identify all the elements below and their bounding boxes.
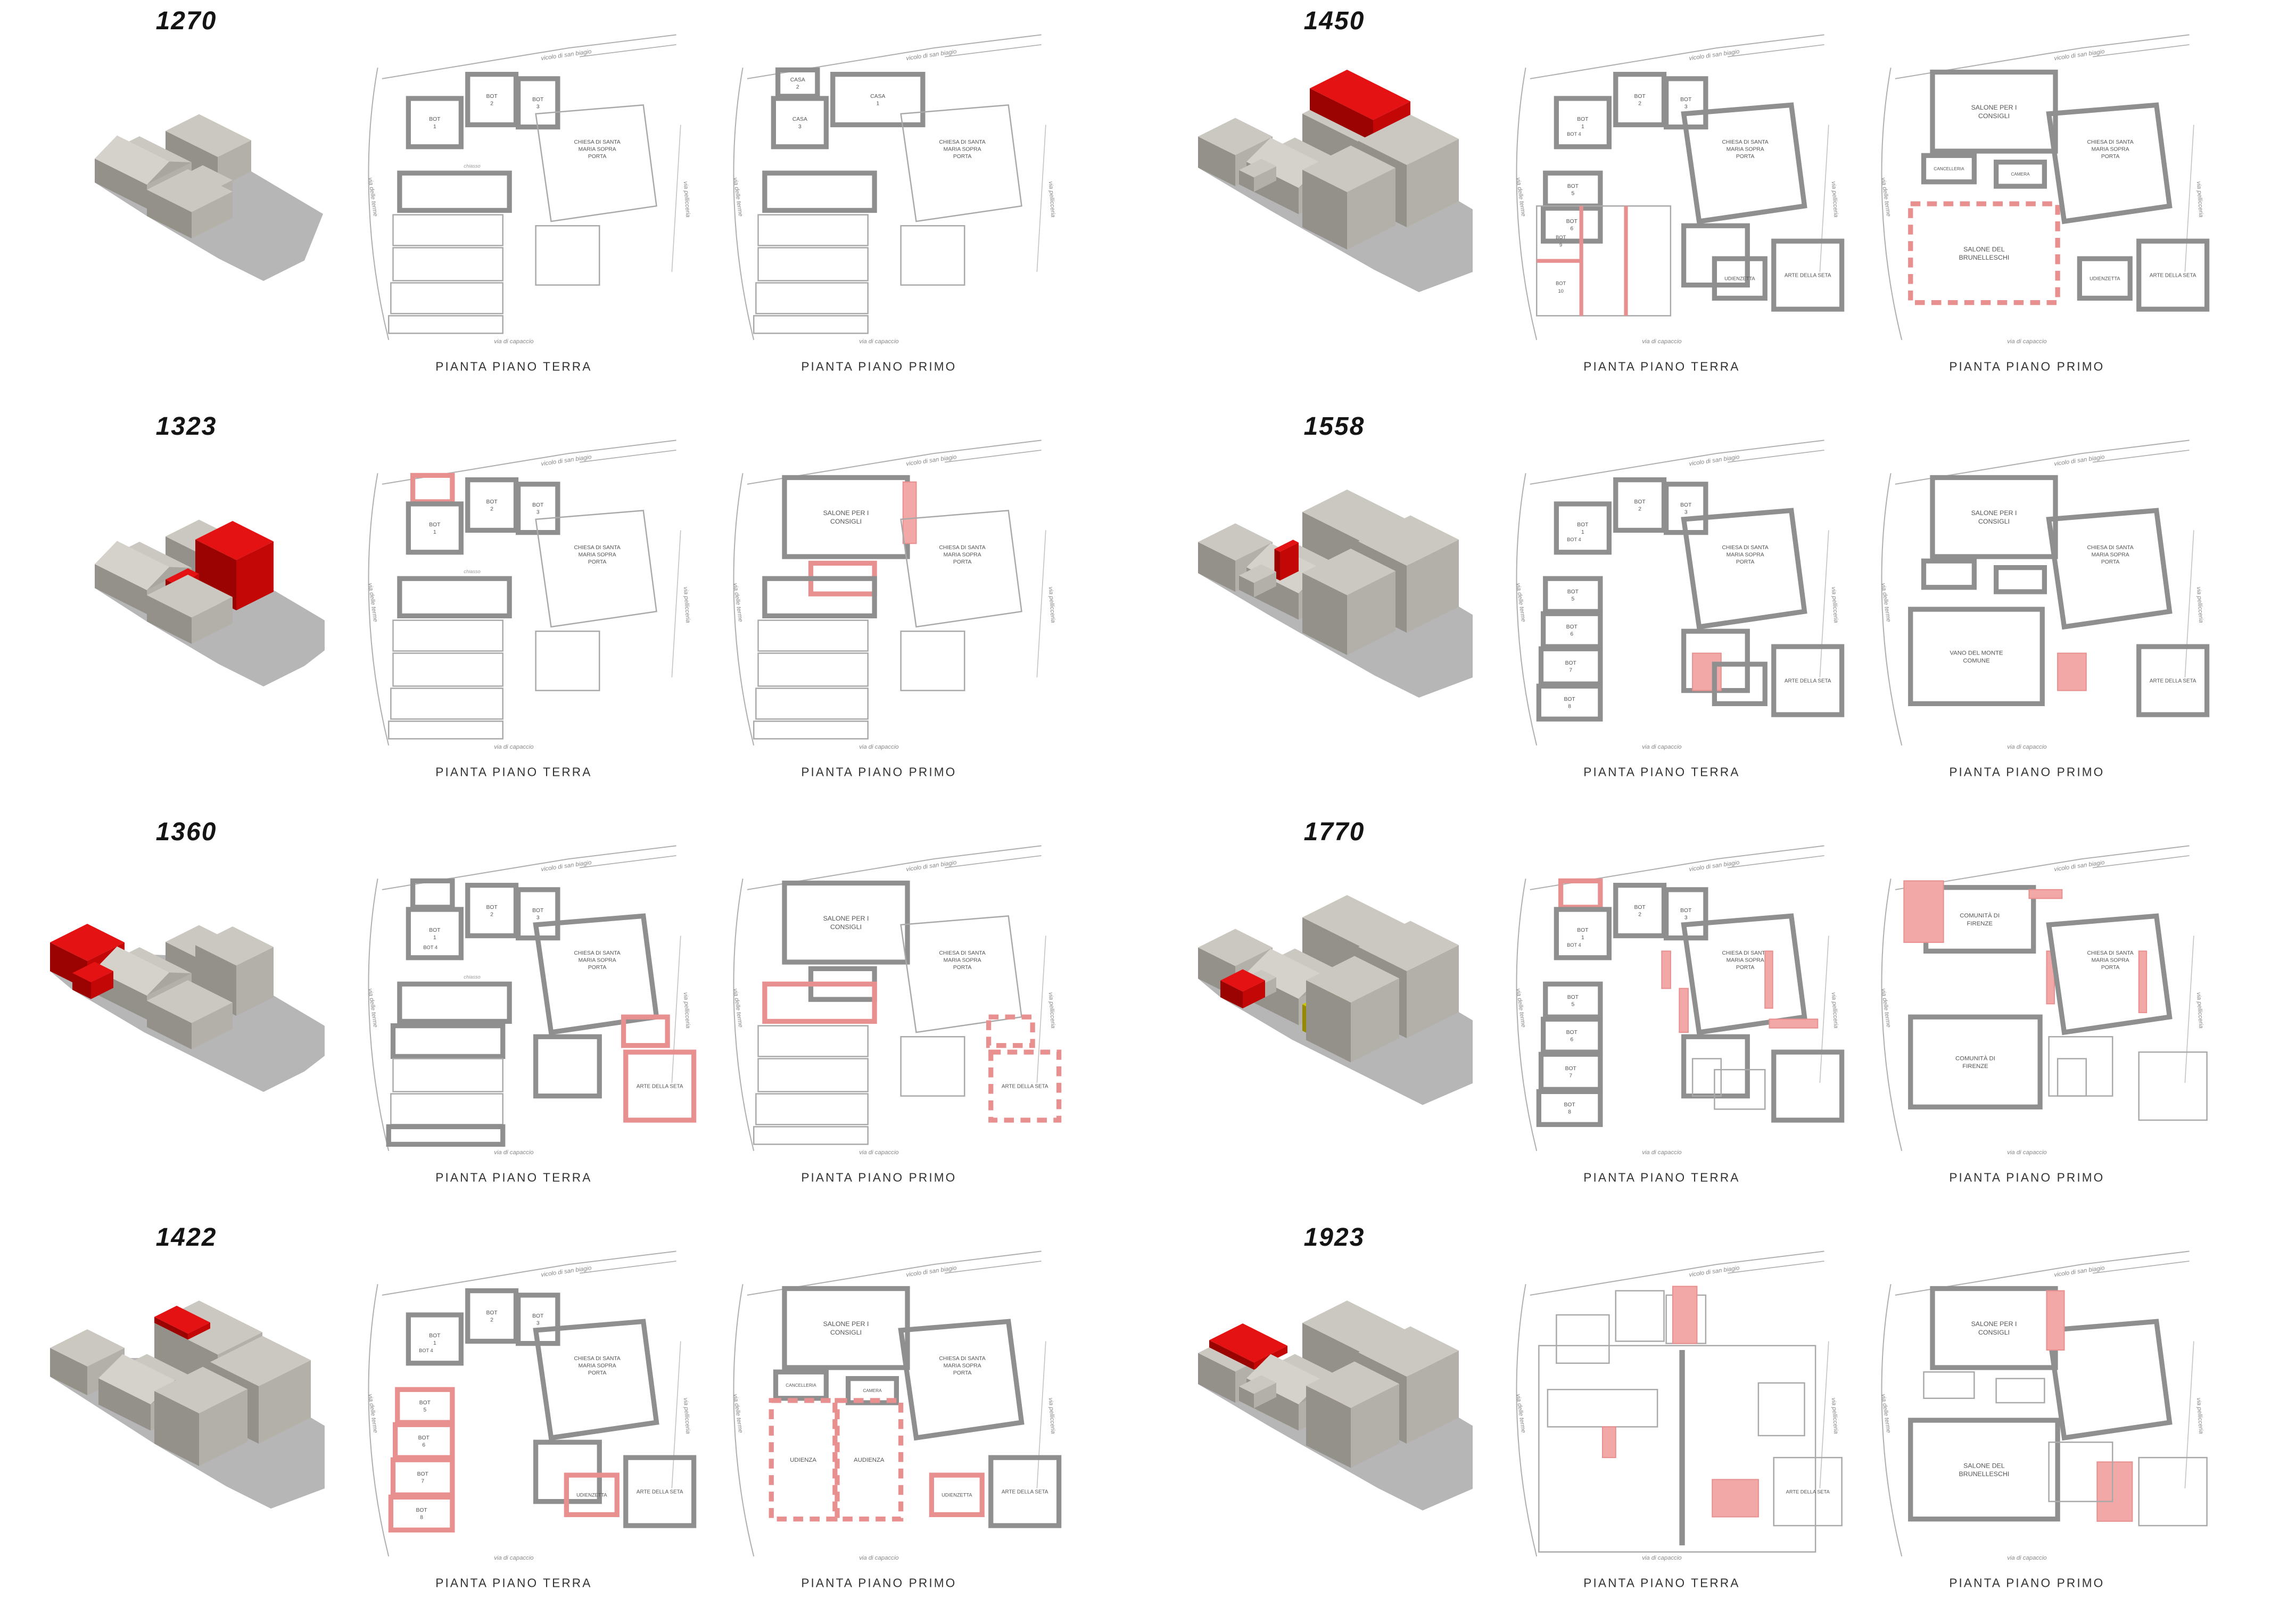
room-p4 <box>389 1127 503 1144</box>
room-label: SALONE PER I <box>1971 104 2017 111</box>
room-label: SALONE PER I <box>1971 509 2017 517</box>
room-label: BOT <box>532 502 544 508</box>
room-label: MARIA SOPRA <box>2092 146 2129 152</box>
room-label: 5 <box>1571 1002 1574 1008</box>
plan-caption: PIANTA PIANO TERRA <box>1583 1171 1740 1185</box>
room-label: BOT 4 <box>1567 942 1581 948</box>
room-label: BOT <box>1634 94 1646 100</box>
room-church <box>1684 510 1805 627</box>
room-salone <box>1932 72 2055 152</box>
room-label: BOT <box>419 1400 431 1406</box>
street-label-right: via pellicceria <box>1830 181 1839 218</box>
plan-caption: PIANTA PIANO PRIMO <box>1949 1171 2104 1185</box>
floor-plan: vicolo di san biagiovia delle termevia p… <box>1497 822 1848 1190</box>
room-label: SALONE DEL <box>1963 245 2005 253</box>
room-label: MARIA SOPRA <box>2092 552 2129 558</box>
room-tlC <box>1616 74 1664 125</box>
room-long <box>400 984 509 1021</box>
room-L5 <box>1539 1091 1600 1124</box>
street-label-bottom: via di capaccio <box>859 1555 898 1561</box>
floor-plan: vicolo di san biagiovia delle termevia p… <box>714 1227 1066 1596</box>
room-label: BOT 4 <box>419 1348 433 1353</box>
room-stair <box>2058 653 2086 691</box>
plan-caption: PIANTA PIANO TERRA <box>1583 1576 1740 1590</box>
room-label: CHIESA DI SANTA <box>939 139 985 145</box>
street-label-right: via pellicceria <box>2195 992 2204 1029</box>
street-label-top: vicolo di san biagio <box>541 454 592 467</box>
room-label: ARTE DELLA SETA <box>1785 678 1831 684</box>
room-label: 6 <box>1570 1037 1573 1043</box>
massing-column: 1360 <box>16 814 335 1187</box>
room-p2 <box>758 248 868 281</box>
street-label-right: via pellicceria <box>1047 992 1056 1029</box>
street-label-top: vicolo di san biagio <box>2054 48 2105 62</box>
room-label: BOT <box>486 905 498 910</box>
street-label-bottom: via di capaccio <box>2007 744 2046 750</box>
room-label: 6 <box>422 1443 425 1448</box>
room-label: 5 <box>423 1407 426 1413</box>
alley-label: chiasso <box>464 974 480 980</box>
massing-column: 1422 <box>16 1220 335 1593</box>
room-label: 2 <box>490 1317 493 1323</box>
street-label-right: via pellicceria <box>1830 992 1839 1029</box>
street-label-top: vicolo di san biagio <box>906 48 957 62</box>
room-label: PORTA <box>588 559 607 565</box>
street-label-bottom: via di capaccio <box>2007 1149 2046 1156</box>
room-udtta <box>1714 1070 1765 1109</box>
room-label: BOT <box>1577 117 1589 122</box>
room-label: MARIA SOPRA <box>1727 552 1764 558</box>
plan-caption: PIANTA PIANO PRIMO <box>801 1576 956 1590</box>
street-label-right: via pellicceria <box>682 1397 691 1434</box>
alley-label: chiasso <box>464 569 480 574</box>
room-label: CHIESA DI SANTA <box>1722 545 1768 551</box>
room-center <box>901 226 965 285</box>
street-label-top: vicolo di san biagio <box>1689 48 1740 62</box>
plan-caption: PIANTA PIANO PRIMO <box>801 1171 956 1185</box>
street-label-top: vicolo di san biagio <box>906 1265 957 1278</box>
room-tlA <box>1561 881 1600 907</box>
room-tlC <box>468 885 516 936</box>
room-label: SALONE PER I <box>823 509 869 517</box>
room-label: MARIA SOPRA <box>944 957 981 963</box>
room-p1 <box>393 620 503 651</box>
room-label: BOT <box>532 908 544 914</box>
room-label: COMUNITÀ DI <box>1960 912 2000 919</box>
room-cam <box>1996 568 2045 592</box>
street-label-top: vicolo di san biagio <box>541 1265 592 1278</box>
room-label: 1 <box>433 529 436 535</box>
room-label: CASA <box>790 77 805 83</box>
room-label: 9 <box>1559 242 1562 247</box>
room-label: BOT <box>1565 660 1577 666</box>
room-brun <box>1911 204 2058 303</box>
room-label: BOT <box>1564 697 1576 702</box>
room-label: 7 <box>1569 668 1572 674</box>
street-label-right: via pellicceria <box>682 586 691 623</box>
room-label: PORTA <box>588 1370 607 1376</box>
room-center <box>536 631 600 690</box>
floor-plan: vicolo di san biagiovia delle termevia p… <box>714 416 1066 785</box>
room-label: MARIA SOPRA <box>944 552 981 558</box>
street-label-top: vicolo di san biagio <box>2054 454 2105 467</box>
phase-panel-1770: 1770vicolo di san biagiovia delle termev… <box>1148 811 2296 1216</box>
floor-plan: vicolo di san biagiovia delle termevia p… <box>349 11 700 379</box>
street-label-top: vicolo di san biagio <box>2054 859 2105 873</box>
plan-caption: PIANTA PIANO PRIMO <box>1949 360 2104 374</box>
room-tlC <box>468 480 516 531</box>
phase-panel-1923: 1923vicolo di san biagiovia delle termev… <box>1148 1216 2296 1622</box>
room-label: 7 <box>421 1479 424 1485</box>
room-label: FIRENZE <box>1967 921 1993 927</box>
room-label: CHIESA DI SANTA <box>1722 950 1768 956</box>
room-arte <box>2139 1052 2207 1120</box>
plans-row: vicolo di san biagiovia delle termevia p… <box>349 3 1066 379</box>
room-udtta <box>1714 664 1765 703</box>
room-label: 7 <box>1569 1073 1572 1079</box>
room-long <box>765 173 874 210</box>
room-p3 <box>391 283 502 314</box>
room-label: BOT <box>532 1313 544 1319</box>
room-label: BOT <box>1634 499 1646 505</box>
room-tlC <box>1616 1291 1664 1342</box>
room-label: ARTE DELLA SETA <box>637 1084 683 1090</box>
street-label-top: vicolo di san biagio <box>1689 454 1740 467</box>
room-label: ARTE DELLA SETA <box>2150 678 2196 684</box>
room-comB <box>1911 1017 2040 1107</box>
room-label: BOT <box>1567 184 1579 189</box>
room-p1 <box>393 215 503 246</box>
room-label: CONSIGLI <box>1978 1329 2010 1336</box>
plan-caption: PIANTA PIANO TERRA <box>1583 360 1740 374</box>
room-church <box>2049 1321 2170 1438</box>
street-label-top: vicolo di san biagio <box>906 859 957 873</box>
room-cam <box>1996 1379 2045 1403</box>
room-p2 <box>758 653 868 686</box>
room-label: 8 <box>420 1515 423 1521</box>
room-label: 3 <box>536 510 540 516</box>
room-label: BOT <box>1565 1066 1577 1072</box>
room-label: 6 <box>1570 632 1573 637</box>
room-label: UDIENZETTA <box>1724 276 1755 281</box>
plans-row: vicolo di san biagiovia delle termevia p… <box>1497 814 2214 1190</box>
room-salone <box>1932 478 2055 557</box>
room-label: CHIESA DI SANTA <box>2087 950 2133 956</box>
room-church <box>901 1321 1022 1438</box>
street-label-bottom: via di capaccio <box>494 1149 533 1156</box>
room-label: ARTE DELLA SETA <box>1002 1084 1048 1090</box>
street-label-bottom: via di capaccio <box>1642 744 1681 750</box>
room-label: CAMERA <box>863 1388 882 1393</box>
plan-caption: PIANTA PIANO PRIMO <box>1949 1576 2104 1590</box>
room-label: CHIESA DI SANTA <box>574 545 620 551</box>
room-label: BOT <box>1577 522 1589 528</box>
room-label: BOT <box>1577 928 1589 933</box>
room-label: BRUNELLESCHI <box>1959 254 2010 261</box>
room-tlB <box>408 909 461 958</box>
room-label: 3 <box>1684 104 1688 110</box>
room-L5 <box>391 1497 452 1530</box>
room-label: ARTE DELLA SETA <box>637 1489 683 1495</box>
room-label: UDIENZETTA <box>2089 276 2120 281</box>
room-church <box>2049 105 2170 221</box>
floor-plan: vicolo di san biagiovia delle termevia p… <box>349 1227 700 1596</box>
street-label-bottom: via di capaccio <box>1642 338 1681 345</box>
room-label: PORTA <box>1736 965 1755 971</box>
room-label: BOT <box>1564 1102 1576 1108</box>
room-label: BOT <box>1567 589 1579 595</box>
floor-plan: vicolo di san biagiovia delle termevia p… <box>1862 11 2214 379</box>
street-label-right: via pellicceria <box>1830 586 1839 623</box>
room-label: BOT 4 <box>1567 131 1581 137</box>
room-tlC <box>468 74 516 125</box>
street-label-right: via pellicceria <box>2195 1397 2204 1434</box>
room-center <box>536 226 600 285</box>
room-label: PORTA <box>953 1370 972 1376</box>
year-label: 1558 <box>1304 412 1365 441</box>
massing-column: 1558 <box>1164 409 1483 782</box>
room-L4 <box>1541 649 1600 684</box>
street-label-top: vicolo di san biagio <box>1689 859 1740 873</box>
street-label-right: via pellicceria <box>1047 586 1056 623</box>
street-label-right: via pellicceria <box>1830 1397 1839 1434</box>
room-L2 <box>1546 984 1600 1017</box>
room-label: BOT <box>1634 905 1646 910</box>
room-label: MARIA SOPRA <box>579 957 616 963</box>
room-label: 1 <box>433 1340 436 1346</box>
floor-plan: vicolo di san biagiovia delle termevia p… <box>1497 416 1848 785</box>
phase-panel-1323: 1323vicolo di san biagiovia delle termev… <box>0 405 1148 811</box>
room-p4 <box>389 316 503 333</box>
room-label: PORTA <box>953 154 972 160</box>
room-label: BOT <box>417 1471 429 1477</box>
room-long <box>400 173 509 210</box>
building-massing-3d <box>1175 441 1473 782</box>
room-label: 5 <box>1571 597 1574 602</box>
phase-panel-1270: 1270vicolo di san biagiovia delle termev… <box>0 0 1148 405</box>
room-label: CONSIGLI <box>1978 112 2010 120</box>
room-label: BOT <box>1567 995 1579 1000</box>
room-label: 3 <box>536 104 540 110</box>
room-canc <box>1924 1372 1975 1398</box>
room-label: 3 <box>536 915 540 921</box>
room-church <box>901 916 1022 1032</box>
massing-column: 1770 <box>1164 814 1483 1187</box>
room-label: BOT <box>1566 1030 1578 1036</box>
massing-column: 1450 <box>1164 3 1483 376</box>
street-label-right: via pellicceria <box>682 181 691 218</box>
room-label: CASA <box>792 117 807 122</box>
room-long <box>765 578 874 616</box>
room-label: BOT <box>1566 624 1578 630</box>
room-salone <box>784 478 907 557</box>
room-rf4 <box>1770 1019 1818 1028</box>
room-label: 2 <box>490 506 493 512</box>
room-brun <box>1911 1420 2058 1519</box>
room-label: 1 <box>433 935 436 941</box>
year-label: 1360 <box>156 817 217 847</box>
plans-row: vicolo di san biagiovia delle termevia p… <box>1497 3 2214 379</box>
street-label-bottom: via di capaccio <box>494 744 533 750</box>
room-tlB <box>1556 909 1609 958</box>
room-label: BOT <box>429 522 441 528</box>
room-label: 1 <box>876 101 879 106</box>
room-label: 2 <box>796 85 799 90</box>
room-L2 <box>1546 578 1600 611</box>
room-label: 2 <box>1638 506 1641 512</box>
room-label: 2 <box>1638 912 1641 917</box>
street-label-right: via pellicceria <box>2195 181 2204 218</box>
room-label: 2 <box>490 101 493 106</box>
plan-caption: PIANTA PIANO TERRA <box>1583 765 1740 779</box>
room-L2 <box>1546 173 1600 206</box>
room-p1 <box>758 620 868 651</box>
room-label: SALONE DEL <box>1963 1462 2005 1469</box>
room-label: CHIESA DI SANTA <box>574 950 620 956</box>
room-label: UDIENZA <box>790 1457 816 1463</box>
year-label: 1270 <box>156 6 217 36</box>
room-label: 2 <box>1638 101 1641 106</box>
room-church <box>901 510 1022 627</box>
room-tlD <box>518 484 558 533</box>
street-label-bottom: via di capaccio <box>494 1555 533 1561</box>
room-label: 8 <box>1568 1109 1571 1115</box>
floor-plan: vicolo di san biagiovia delle termevia p… <box>714 11 1066 379</box>
plan-caption: PIANTA PIANO PRIMO <box>801 765 956 779</box>
floor-plan: vicolo di san biagiovia delle termevia p… <box>1862 416 2214 785</box>
room-label: PORTA <box>588 154 607 160</box>
room-L5 <box>1539 686 1600 719</box>
street-label-top: vicolo di san biagio <box>2054 1265 2105 1278</box>
building-massing-3d <box>1175 36 1473 376</box>
room-label: BOT <box>486 94 498 100</box>
room-label: 8 <box>1568 704 1571 710</box>
room-label: 10 <box>1558 288 1563 294</box>
room-rf5 <box>2029 890 2062 899</box>
room-label: ARTE DELLA SETA <box>1786 1489 1830 1494</box>
street-label-top: vicolo di san biagio <box>1689 1265 1740 1278</box>
room-label: MARIA SOPRA <box>579 146 616 152</box>
room-church <box>536 510 657 627</box>
room-label: SALONE PER I <box>823 1320 869 1328</box>
building-massing-3d <box>1175 1252 1473 1593</box>
room-rf1 <box>1662 951 1671 988</box>
room-label: PORTA <box>2101 559 2120 565</box>
room-label: MARIA SOPRA <box>579 1363 616 1369</box>
room-church <box>2049 916 2170 1032</box>
room-label: SALONE PER I <box>823 915 869 922</box>
room-label: BRUNELLESCHI <box>1959 1470 2010 1478</box>
room-label: 6 <box>1570 226 1573 232</box>
year-label: 1450 <box>1304 6 1365 36</box>
room-label: 3 <box>1684 510 1688 516</box>
room-label: 2 <box>490 912 493 917</box>
room-canc <box>1924 561 1975 587</box>
room-p4 <box>754 721 868 739</box>
room-tlB <box>408 504 461 552</box>
room-stair <box>1692 1059 1721 1096</box>
room-p4 <box>754 1127 868 1144</box>
room-label: PORTA <box>953 559 972 565</box>
floor-plan: vicolo di san biagiovia delle termevia p… <box>714 822 1066 1190</box>
room-p3 <box>391 1094 502 1125</box>
street-label-right: via pellicceria <box>1047 1397 1056 1434</box>
room-tlB <box>1556 1315 1609 1363</box>
room-L3 <box>1543 614 1600 647</box>
room-church <box>536 1321 657 1438</box>
room-church <box>1684 916 1805 1032</box>
street-label-right: via pellicceria <box>1047 181 1056 218</box>
room-center <box>1684 1037 1748 1096</box>
room-p3 <box>756 1094 868 1125</box>
room-p2 <box>393 1059 503 1092</box>
room-church <box>536 105 657 221</box>
room-rf7 <box>2139 951 2146 1013</box>
room-center <box>2049 1037 2113 1096</box>
room-label: 1 <box>1581 935 1584 941</box>
year-label: 1923 <box>1304 1223 1365 1252</box>
plan-caption: PIANTA PIANO TERRA <box>435 360 592 374</box>
floor-plan: vicolo di san biagiovia delle termevia p… <box>349 416 700 785</box>
room-label: CAMERA <box>2011 172 2030 177</box>
room-L3 <box>1543 208 1600 241</box>
room-center <box>901 1037 965 1096</box>
street-label-bottom: via di capaccio <box>859 338 898 345</box>
room-tlD <box>518 79 558 127</box>
room-redC2 <box>2097 1462 2132 1521</box>
building-massing-3d <box>27 847 325 1187</box>
massing-column: 1270 <box>16 3 335 376</box>
room-label: SALONE PER I <box>1971 1320 2017 1328</box>
room-rf3 <box>1765 951 1772 1008</box>
room-label: MARIA SOPRA <box>579 552 616 558</box>
floor-plan: vicolo di san biagiovia delle termevia p… <box>1497 1227 1848 1596</box>
room-center <box>536 1037 600 1096</box>
room-label: BOT <box>429 117 441 122</box>
room-label: ARTE DELLA SETA <box>1785 273 1831 279</box>
room-church <box>1684 105 1805 221</box>
room-label: PORTA <box>953 965 972 971</box>
room-p2 <box>758 1059 868 1092</box>
room-label: ARTE DELLA SETA <box>1002 1489 1048 1495</box>
room-p1 <box>758 215 868 246</box>
room-label: PORTA <box>2101 965 2120 971</box>
street-label-bottom: via di capaccio <box>1642 1149 1681 1156</box>
room-redstrip <box>903 482 916 544</box>
room-label: BOT <box>532 97 544 103</box>
room-L3 <box>395 1425 452 1458</box>
room-label: PORTA <box>2101 154 2120 160</box>
room-tlB <box>408 1315 461 1363</box>
room-p2 <box>393 248 503 281</box>
room-p3 <box>391 689 502 719</box>
room-redTL <box>1904 881 1943 942</box>
massing-column: 1323 <box>16 409 335 782</box>
room-rfA <box>1603 1427 1616 1458</box>
room-long <box>400 578 509 616</box>
phase-panel-1360: 1360vicolo di san biagiovia delle termev… <box>0 811 1148 1216</box>
room-tlC <box>468 1291 516 1342</box>
room-label: BOT <box>1680 908 1692 914</box>
phase-panel-1450: 1450vicolo di san biagiovia delle termev… <box>1148 0 2296 405</box>
room-p1 <box>393 1026 503 1057</box>
room-label: MARIA SOPRA <box>944 1363 981 1369</box>
room-tlA <box>778 70 817 96</box>
room-label: 3 <box>798 124 802 130</box>
room-label: BOT <box>418 1435 430 1441</box>
phase-panel-1422: 1422vicolo di san biagiovia delle termev… <box>0 1216 1148 1622</box>
room-p2 <box>393 653 503 686</box>
